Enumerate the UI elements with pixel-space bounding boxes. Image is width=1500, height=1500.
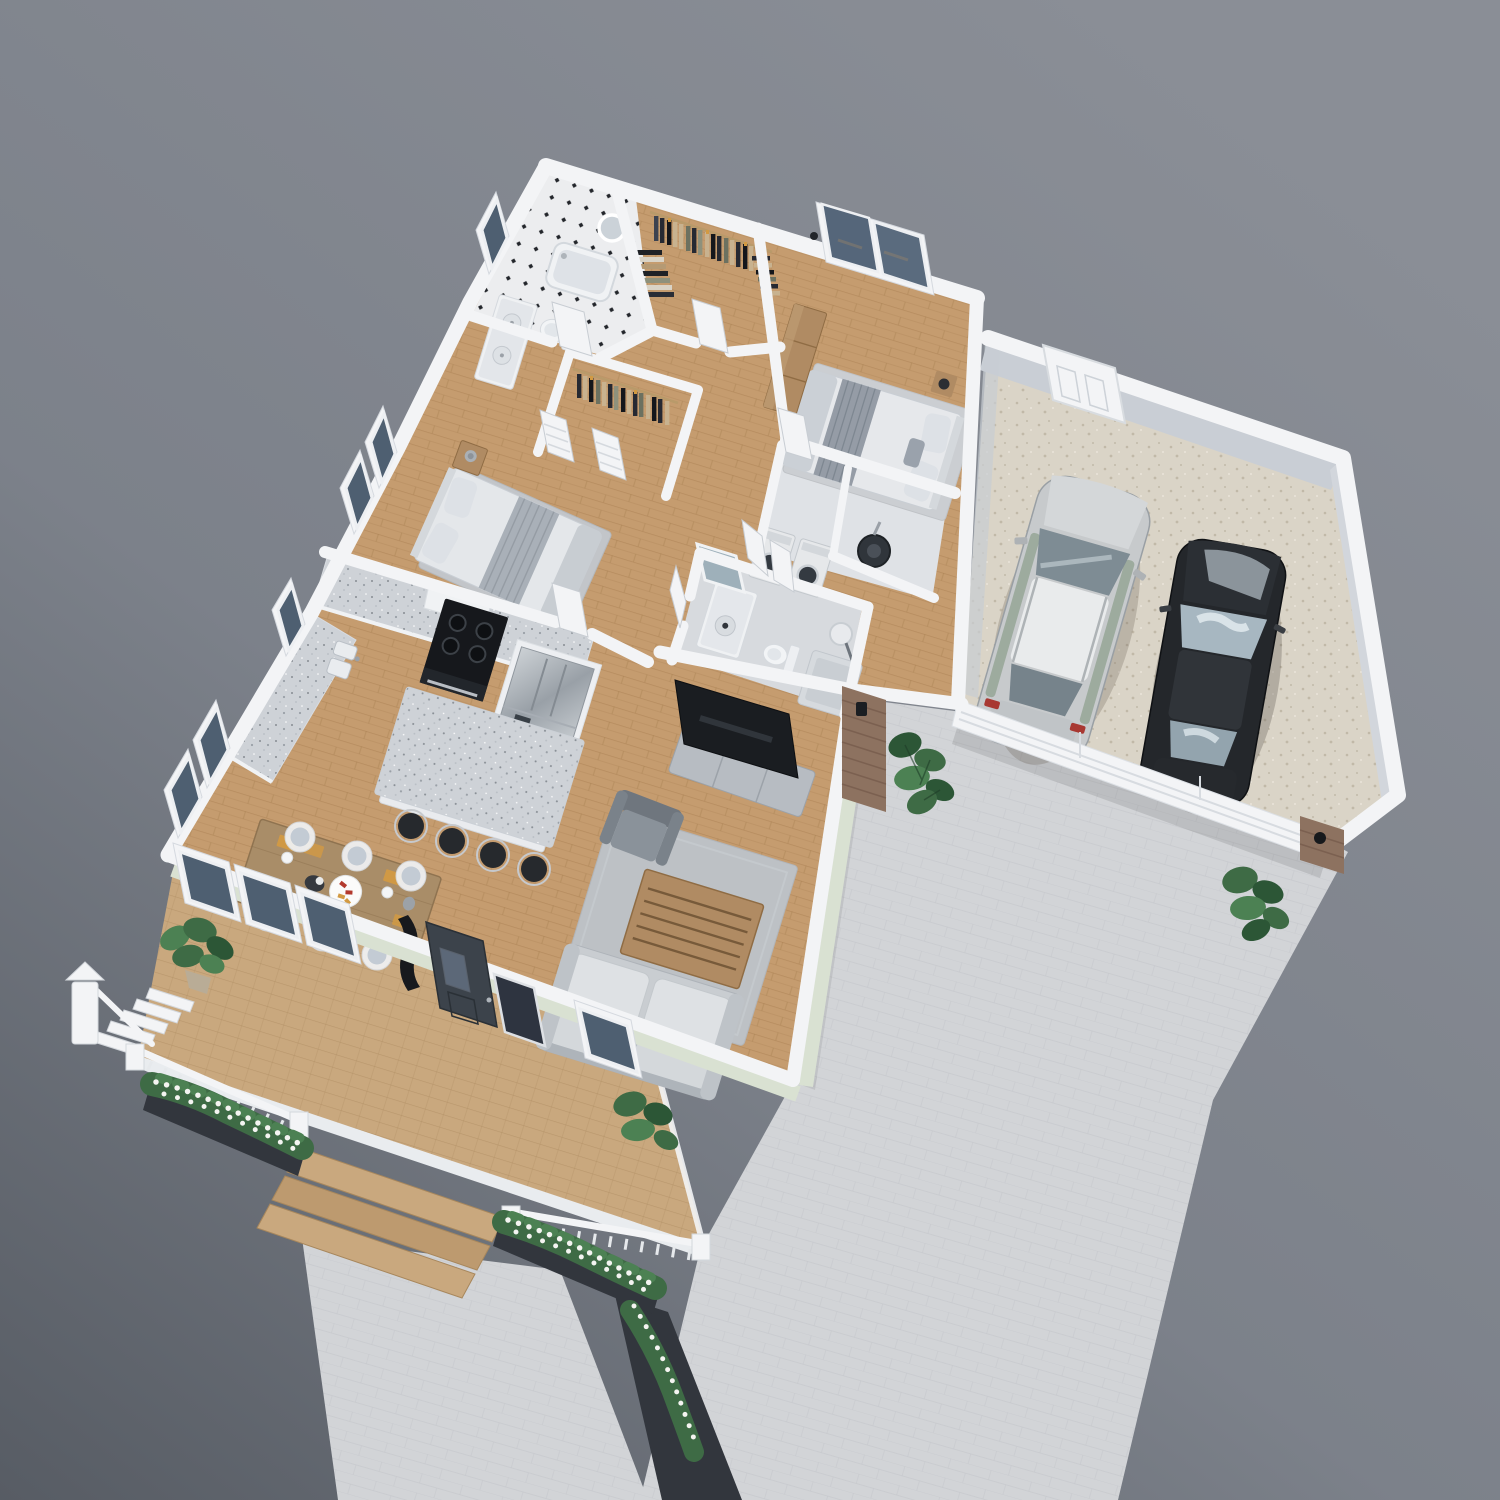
railing-post bbox=[692, 1234, 710, 1260]
wall-lamp bbox=[856, 702, 867, 716]
floorplan-render bbox=[0, 0, 1500, 1500]
newel-post bbox=[72, 982, 98, 1044]
shower-head bbox=[830, 623, 852, 645]
wall-lamp bbox=[810, 232, 818, 240]
side-mirror bbox=[1014, 537, 1027, 544]
roof bbox=[1168, 649, 1253, 731]
brick-pillar-nook bbox=[842, 686, 886, 812]
door-handle bbox=[487, 998, 492, 1003]
wall-lamp bbox=[1314, 832, 1326, 844]
railing-post bbox=[126, 1044, 144, 1070]
render-canvas bbox=[0, 0, 1500, 1500]
